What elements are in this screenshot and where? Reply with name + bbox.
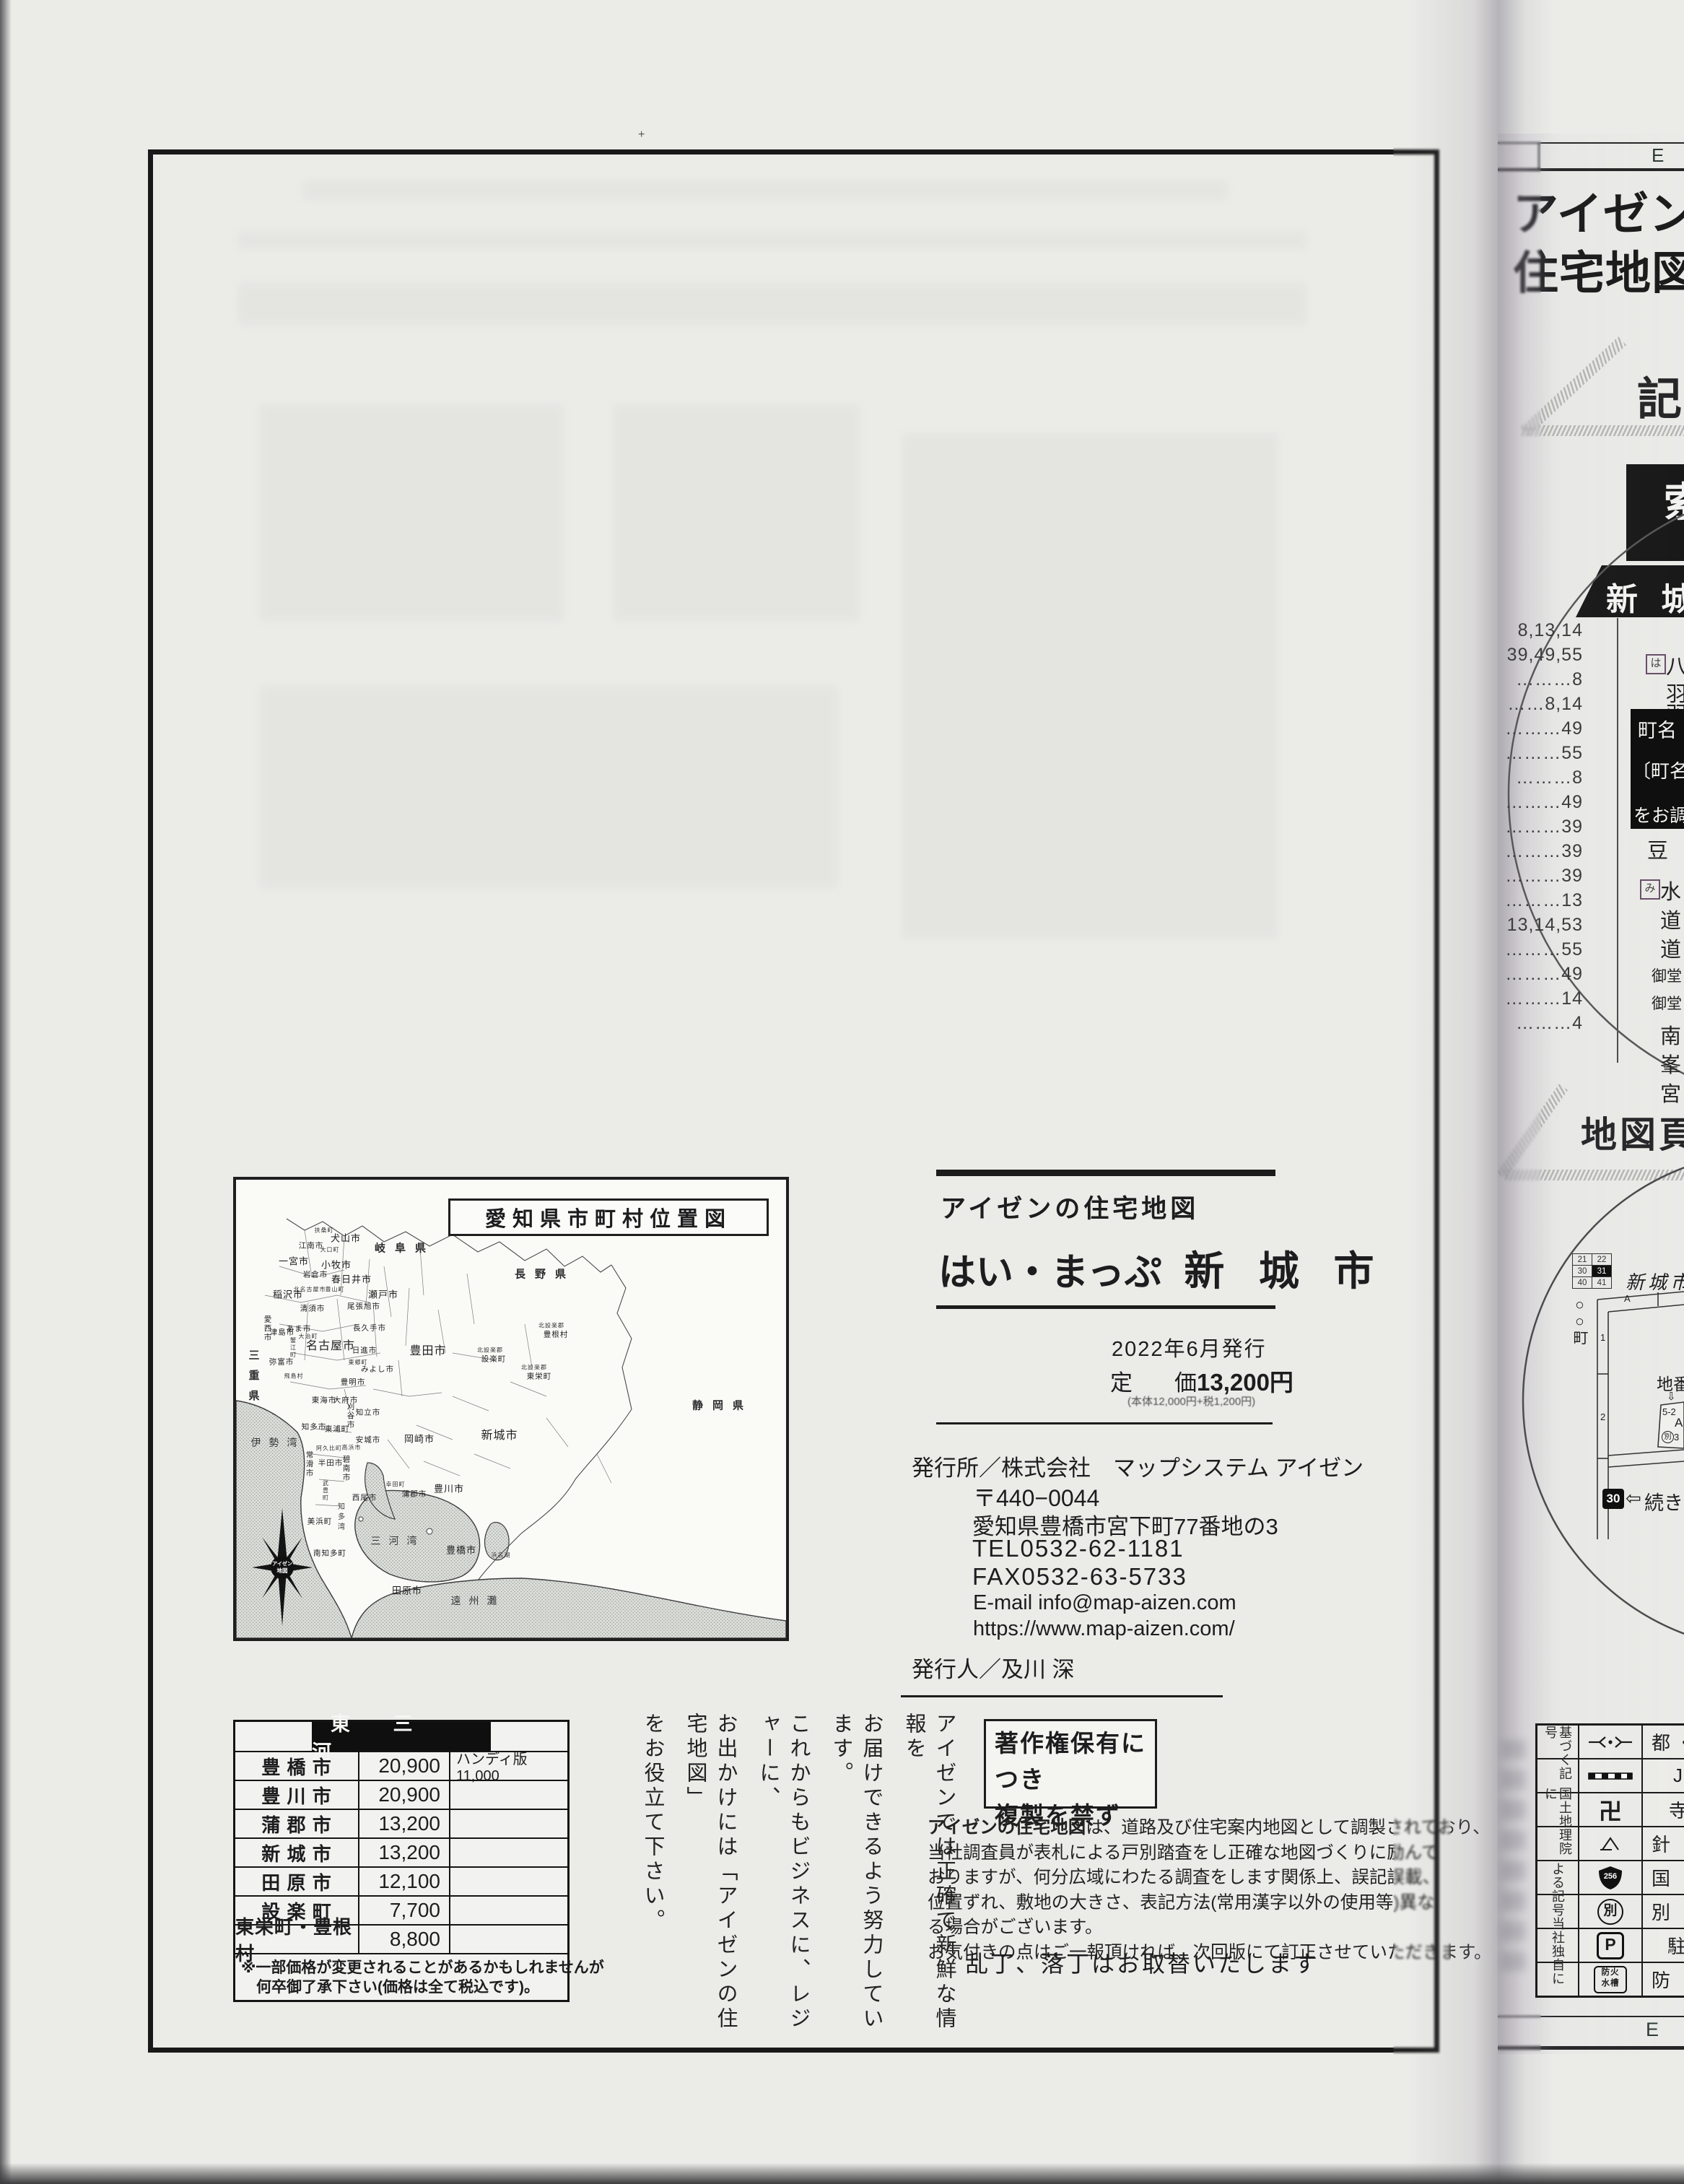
book-title: はい・まっぷ 新 城 市	[938, 1239, 1386, 1297]
index-page-ref: 39,49,55	[1498, 643, 1583, 667]
circled-betsu-icon: 別	[1578, 1895, 1643, 1928]
price-variant-note	[450, 1926, 567, 1953]
national-route-shield-icon: 256	[1578, 1861, 1643, 1894]
price-value: 20,900	[359, 1752, 450, 1780]
map-label: 飛島村	[284, 1372, 304, 1380]
betsu-char: 別	[1597, 1899, 1623, 1925]
email: E-mail info@map-aizen.com	[973, 1591, 1236, 1615]
map-label: 瀬戸市	[368, 1287, 398, 1301]
map-label: 半田市	[318, 1458, 344, 1469]
map-label: 豊川市	[434, 1482, 464, 1495]
bleed-ghost	[614, 404, 859, 621]
grid-cell-current: 31	[1592, 1266, 1612, 1277]
grid-cell: 22	[1592, 1254, 1612, 1266]
index-entry-fragment: 宮	[1660, 1077, 1681, 1108]
map-label: 岩倉市	[303, 1269, 328, 1280]
tank-line1: 防火	[1602, 1968, 1620, 1977]
group-label-line: よる記号	[1550, 1862, 1565, 1917]
bleed-ghost	[238, 232, 1306, 248]
price-value: 13,200	[359, 1810, 450, 1837]
price-label: 定	[1110, 1370, 1133, 1396]
map-labels: 岐阜県長野県静岡県三重県伊勢湾三河湾遠州灘知多湾浜名湖扶桑町犬山市江南市大口町一…	[236, 1180, 786, 1638]
price-row: 蒲 郡 市 13,200	[235, 1810, 567, 1839]
index-entry-fragment: 八	[1666, 650, 1684, 680]
legend-desc: 駐	[1643, 1929, 1684, 1962]
grid-cell: 30	[1573, 1266, 1592, 1277]
fire-cistern-icon: 防火水槽	[1578, 1963, 1643, 1996]
map-label: 知多湾	[335, 1502, 346, 1533]
price-value: 13,200円	[1197, 1369, 1293, 1396]
bleed-ghost	[303, 180, 1227, 199]
index-page-numbers: 8,13,1439,49,55………8……8,14………49………55………8……	[1498, 618, 1583, 1035]
sample-col-label: A	[1624, 1293, 1631, 1304]
slogan-line: これからもビジネスに、レジャーに、	[753, 1713, 813, 2055]
map-label: 浜名湖	[492, 1552, 511, 1559]
rule-publisher	[901, 1695, 1223, 1697]
group-label-line: 当社独自に	[1550, 1917, 1565, 1985]
bleed-ghost	[260, 686, 837, 888]
map-label: 尾張旭市	[347, 1301, 380, 1312]
index-page-ref: ………8	[1498, 667, 1583, 692]
page-grid-sample: 2122 3031 4041	[1572, 1253, 1612, 1289]
rule-top	[936, 1170, 1275, 1176]
map-label: 豊根村	[544, 1329, 569, 1340]
map-label: 幸田町	[386, 1481, 406, 1489]
map-label: 南知多町	[313, 1548, 346, 1559]
price-row: 田 原 市 12,100	[235, 1868, 567, 1897]
publisher-line: 発行所／株式会社 マップシステム アイゼン	[912, 1450, 1364, 1482]
copyright-line1: 著作権保有につき	[995, 1726, 1155, 1798]
disclaimer-line: は、道路及び住宅案内地図として調製されており、	[1086, 1818, 1490, 1837]
index-page-ref: 8,13,14	[1498, 618, 1583, 643]
index-page-ref: ………14	[1498, 986, 1583, 1011]
legend-group-gsi: 基づく記号国土地理院に	[1537, 1726, 1578, 1861]
header-spacer	[235, 1722, 312, 1751]
city-title: 新 城 市	[1184, 1248, 1385, 1294]
parcel-annex: 別3	[1662, 1431, 1679, 1443]
map-label: 名古屋市	[306, 1336, 355, 1353]
slogan-vertical-text: アイゼンでは正確で新鮮な情報を お届けできるよう努力しています。 これからもビジ…	[625, 1713, 959, 2055]
legend-desc: 別 記	[1643, 1895, 1684, 1928]
map-label: 弥富市	[269, 1357, 295, 1367]
price-value: 8,800	[359, 1926, 450, 1953]
map-label: 三重県	[246, 1349, 261, 1410]
map-label: 碧南市	[341, 1455, 352, 1482]
continuation-text: 続きペ	[1644, 1487, 1684, 1515]
index-entry-fragment: は	[1646, 654, 1666, 674]
map-label: 東浦町	[325, 1424, 350, 1435]
price-rows: 豊 橋 市 20,900 ハンディ版11,000 豊 川 市 20,900 蒲 …	[235, 1752, 567, 1954]
aichi-locator-map: アイゼン 地図 愛知県市町村位置図 岐阜県長野県静岡県三重県伊勢湾三河湾遠州灘知…	[233, 1177, 789, 1641]
index-page-ref: ……8,14	[1498, 692, 1583, 716]
price-value: 20,900	[359, 1781, 450, 1809]
price-row: 豊 橋 市 20,900 ハンディ版11,000	[235, 1752, 567, 1781]
temple-manji-icon: 卍	[1578, 1793, 1643, 1826]
legend-desc: 寺	[1643, 1793, 1684, 1826]
map-label: 稲沢市	[273, 1287, 303, 1301]
price-variant-note	[450, 1839, 567, 1866]
series-title: はい・まっぷ	[938, 1252, 1162, 1294]
map-label: 岐阜県	[375, 1240, 435, 1256]
slogan-line: をお役立て下さい。	[637, 1713, 668, 2055]
notice-line: 〔町名	[1632, 757, 1684, 783]
group-label-line: 国土地理院に	[1543, 1787, 1572, 1861]
left-arrow-icon: ⇦	[1626, 1487, 1641, 1510]
p-char: P	[1597, 1932, 1624, 1959]
legend-group-own: よる記号当社独自に	[1537, 1861, 1578, 1985]
grid-cell: 40	[1573, 1277, 1592, 1289]
disclaimer-line: 当社調査員が表札による戸別踏査をし正確な地図づくりに励んで	[928, 1841, 1361, 1866]
index-page-ref: ………4	[1498, 1011, 1583, 1035]
index-page-ref: ………39	[1498, 839, 1583, 863]
map-label: 清須市	[300, 1303, 326, 1314]
index-page-ref: ………49	[1498, 962, 1583, 986]
map-label: 長野県	[515, 1266, 575, 1282]
index-page-ref: ………39	[1498, 814, 1583, 839]
price-variant-note	[450, 1810, 567, 1837]
index-entry-fragment: 水	[1660, 875, 1681, 905]
map-label: 遠州灘	[451, 1593, 505, 1608]
map-label: 蟹江町	[289, 1337, 297, 1359]
index-entry-fragment: 御堂	[1652, 992, 1682, 1014]
map-label: 豊橋市	[446, 1543, 476, 1557]
map-label: 高浜市	[342, 1444, 362, 1452]
slogan-line: アイゼンでは正確で新鮮な情報を	[899, 1713, 959, 2055]
price-variant-note	[450, 1868, 567, 1895]
footnote-line: ※一部価格が変更されることがあるかもしれませんが	[241, 1958, 562, 1978]
rule-bottom	[936, 1422, 1273, 1424]
sample-row-label: 1	[1600, 1332, 1605, 1343]
map-label: 田原市	[392, 1583, 422, 1597]
legend-desc: 防 火	[1643, 1963, 1684, 1996]
disclaimer: アイゼンの住宅地図は、道路及び住宅案内地図として調製されており、 当社調査員が表…	[928, 1816, 1361, 1965]
notice-line: をお調	[1633, 801, 1684, 827]
disclaimer-line: る場合がございます。	[928, 1915, 1361, 1941]
map-label: 三河湾	[371, 1533, 425, 1548]
index-entry-fragment: 道	[1660, 904, 1681, 934]
map-label: みよし市	[361, 1364, 394, 1375]
rule-mid	[936, 1305, 1275, 1309]
index-entry-fragment: 豆	[1647, 834, 1668, 864]
municipality-name: 新 城 市	[235, 1839, 359, 1866]
map-label: 東栄町	[527, 1371, 552, 1382]
conifer-icon	[1578, 1827, 1643, 1860]
issuer: 発行人／及川 深	[912, 1651, 1075, 1684]
map-label: 日進市	[352, 1345, 378, 1356]
disclaimer-line: 位置ずれ、敷地の大きさ、表記方法(常用漢字以外の使用等)異な	[928, 1891, 1361, 1916]
map-label: 知多市	[302, 1422, 327, 1432]
price-row: 豊 川 市 20,900	[235, 1781, 567, 1810]
municipality-name: 田 原 市	[235, 1868, 359, 1895]
grid-cell: 41	[1592, 1277, 1612, 1289]
price-value: 12,100	[359, 1868, 450, 1895]
tel: TEL0532-62-1181	[972, 1535, 1185, 1562]
index-page-ref: ………8	[1498, 765, 1583, 790]
footnote-line: 何卒御了承下さい(価格は全て税込です)。	[241, 1978, 562, 1997]
fax: FAX0532-63-5733	[972, 1563, 1187, 1591]
index-page-ref: ………55	[1498, 741, 1583, 765]
group-label-line: 基づく記号	[1543, 1726, 1572, 1787]
map-label: 長久手市	[353, 1323, 386, 1334]
price-variant-note: ハンディ版11,000	[450, 1752, 567, 1780]
sample-city-name: 新城市	[1626, 1268, 1684, 1295]
copyright-box: 著作権保有につき 複製を禁ず	[984, 1719, 1157, 1809]
bleed-ghost	[902, 433, 1278, 939]
continuation-page-box: 30	[1602, 1489, 1624, 1509]
notice-line: 町名	[1638, 715, 1677, 743]
parcel-number: 5-2	[1662, 1406, 1676, 1417]
annex-number: 3	[1674, 1432, 1679, 1443]
map-label: 豊明市	[341, 1377, 366, 1388]
legend-desc: 国 道	[1643, 1861, 1684, 1894]
price-label2: 価	[1174, 1370, 1197, 1396]
parcel-col: A	[1675, 1416, 1683, 1430]
municipality-name: 東栄町・豊根村	[235, 1926, 359, 1953]
disclaimer-line: おりますが、何分広域にわたる調査をします関係上、誤記誤載、	[928, 1866, 1361, 1891]
map-label: 知立市	[356, 1407, 381, 1418]
slogan-line: お出かけには「アイゼンの住宅地図」	[680, 1713, 741, 2055]
map-label: 豊田市	[409, 1341, 446, 1358]
map-label: 阿久比町	[316, 1445, 342, 1453]
scan-left-edge	[0, 0, 12, 2184]
index-entry-fragment: 道	[1660, 933, 1681, 963]
down-arrow-icon: ⇩	[1667, 1390, 1676, 1403]
exchange-note: 乱丁、落丁はお取替いたします	[965, 1946, 1319, 1979]
index-entry-fragment: 御堂	[1652, 965, 1682, 986]
slogan-line: お届けできるよう努力しています。	[826, 1713, 886, 2055]
grid-cell: 21	[1573, 1254, 1592, 1266]
index-page-ref: ………13	[1498, 888, 1583, 913]
map-label: 犬山市	[331, 1231, 361, 1245]
map-label: 伊勢湾	[251, 1435, 305, 1450]
map-label: 津島市	[270, 1327, 295, 1338]
price-variant-note	[450, 1897, 567, 1924]
index-page-ref: ………49	[1498, 790, 1583, 814]
map-label: 美浜町	[307, 1516, 333, 1527]
price-note: (本体12,000円+税1,200円)	[1127, 1393, 1255, 1409]
price-value: 7,700	[359, 1897, 450, 1924]
map-label: 武豊町	[322, 1480, 330, 1502]
circled-betsu-icon: 別	[1662, 1431, 1674, 1443]
map-label: 春日井市	[331, 1272, 372, 1286]
price-variant-note	[450, 1781, 567, 1809]
sample-town-label: ○○町	[1571, 1297, 1588, 1345]
price-row: 東栄町・豊根村 8,800	[235, 1926, 567, 1954]
index-entry-fragment: 峯	[1660, 1048, 1681, 1079]
map-label: 設楽町	[481, 1354, 507, 1365]
map-label: 静岡県	[692, 1398, 753, 1413]
index-entry-fragment: み	[1640, 879, 1660, 900]
registration-mark: +	[638, 129, 645, 142]
index-page-ref: ………55	[1498, 937, 1583, 962]
parking-icon: P	[1578, 1929, 1643, 1962]
map-label: 新城市	[481, 1425, 518, 1443]
tank-line2: 水槽	[1602, 1979, 1620, 1988]
price-line: 定価13,200円	[1110, 1363, 1293, 1398]
index-page-ref: ………39	[1498, 863, 1583, 888]
price-value: 13,200	[359, 1839, 450, 1866]
bleed-ghost	[238, 283, 1306, 325]
bleed-ghost	[260, 404, 563, 621]
prefectural-road-icon	[1578, 1726, 1643, 1758]
legend-desc: J	[1643, 1759, 1684, 1792]
price-table: 東 三 河 豊 橋 市 20,900 ハンディ版11,000 豊 川 市 20,…	[233, 1720, 570, 2002]
municipality-name: 豊 橋 市	[235, 1752, 359, 1780]
region-header: 東 三 河	[312, 1722, 491, 1751]
scanned-book-page: +	[0, 0, 1684, 2184]
header-spacer	[491, 1722, 567, 1751]
map-label: 一宮市	[279, 1254, 309, 1268]
town-name-notice-box: 町名 〔町名 をお調	[1631, 709, 1684, 829]
map-legend-table: 基づく記号国土地理院に よる記号当社独自に 都・ J 卍 寺 針 葉	[1535, 1723, 1684, 1998]
map-label: 常滑市	[305, 1450, 315, 1478]
map-label: 岡崎市	[404, 1432, 435, 1445]
route-number: 256	[1604, 1872, 1617, 1881]
municipality-name: 蒲 郡 市	[235, 1810, 359, 1837]
map-label: 西尾市	[352, 1492, 378, 1503]
index-entry-fragment: 南	[1660, 1019, 1681, 1050]
index-page-ref: ………49	[1498, 716, 1583, 741]
jr-railway-icon	[1578, 1759, 1643, 1792]
issue-date: 2022年6月発行	[1112, 1332, 1267, 1362]
map-label: 蒲郡市	[402, 1489, 427, 1500]
price-table-footnote: ※一部価格が変更されることがあるかもしれませんが 何卒御了承下さい(価格は全て税…	[235, 1954, 567, 2000]
sample-row-label: 2	[1600, 1411, 1605, 1422]
legend-desc: 針 葉	[1643, 1827, 1684, 1860]
map-label: 大口町	[320, 1246, 340, 1254]
index-page-ref: 13,14,53	[1498, 913, 1583, 937]
price-row: 新 城 市 13,200	[235, 1839, 567, 1868]
map-label: 豊山町	[326, 1286, 345, 1294]
scan-bottom-edge	[0, 2163, 1684, 2184]
brand-title: アイゼンの住宅地図	[941, 1188, 1199, 1225]
legend-desc: 都・	[1643, 1726, 1684, 1758]
municipality-name: 豊 川 市	[235, 1781, 359, 1809]
website-url: https://www.map-aizen.com/	[973, 1617, 1235, 1641]
